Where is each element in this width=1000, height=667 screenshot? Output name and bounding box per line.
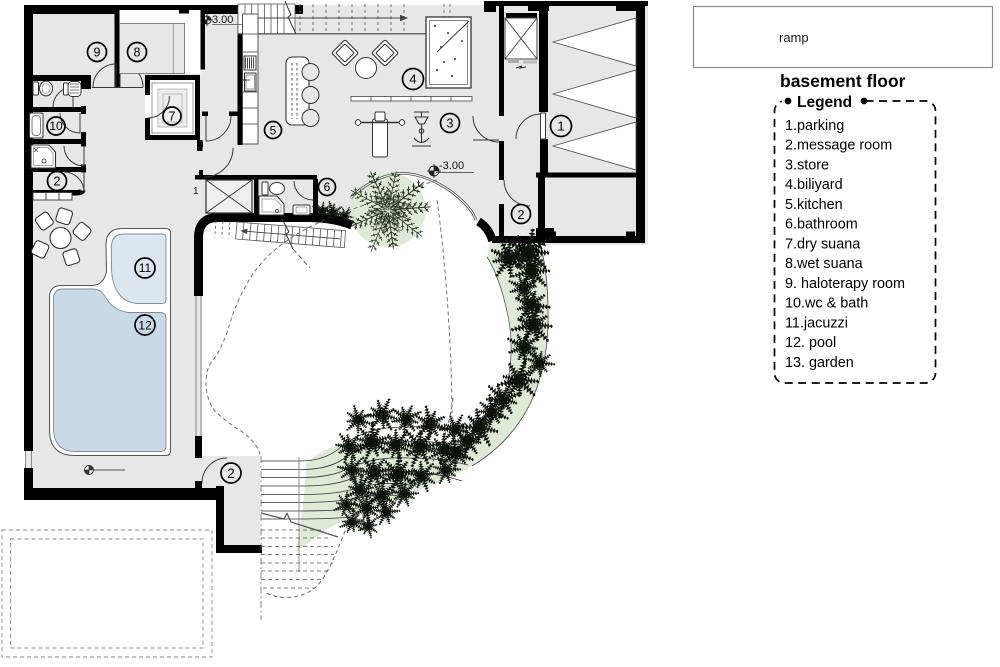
svg-text:7: 7	[169, 110, 176, 124]
svg-text:4: 4	[409, 72, 416, 87]
svg-text:6: 6	[324, 180, 331, 194]
svg-text:3.store: 3.store	[785, 158, 829, 174]
svg-text:5.kitchen: 5.kitchen	[785, 197, 843, 213]
svg-text:Legend: Legend	[797, 94, 852, 111]
svg-text:7.dry suana: 7.dry suana	[785, 237, 860, 253]
svg-text:1: 1	[193, 186, 199, 197]
svg-text:4.biliyard: 4.biliyard	[785, 177, 843, 193]
svg-text:10.wc & bath: 10.wc & bath	[785, 296, 868, 312]
svg-text:12. pool: 12. pool	[785, 335, 836, 351]
svg-text:ramp: ramp	[779, 30, 809, 45]
svg-text:2: 2	[227, 466, 235, 481]
svg-text:9: 9	[94, 46, 101, 60]
svg-text:1: 1	[557, 119, 564, 134]
svg-text:1.parking: 1.parking	[785, 118, 844, 134]
svg-text:2.message room: 2.message room	[785, 138, 892, 154]
svg-text:5: 5	[270, 124, 277, 138]
svg-text:12: 12	[138, 319, 152, 333]
svg-text:6.bathroom: 6.bathroom	[785, 217, 858, 233]
svg-text:basement floor: basement floor	[780, 71, 906, 91]
svg-text:8: 8	[134, 46, 141, 60]
svg-text:11.jacuzzi: 11.jacuzzi	[785, 316, 848, 332]
svg-text:2: 2	[518, 208, 525, 222]
svg-text:11: 11	[139, 261, 152, 275]
svg-text:-3.00: -3.00	[439, 160, 464, 172]
svg-text:13. garden: 13. garden	[785, 355, 854, 371]
svg-text:2: 2	[54, 175, 61, 189]
svg-text:8.wet suana: 8.wet suana	[785, 256, 863, 272]
svg-text:10: 10	[49, 119, 63, 133]
svg-text:3: 3	[447, 117, 454, 131]
svg-text:9. haloterapy room: 9. haloterapy room	[785, 276, 905, 292]
